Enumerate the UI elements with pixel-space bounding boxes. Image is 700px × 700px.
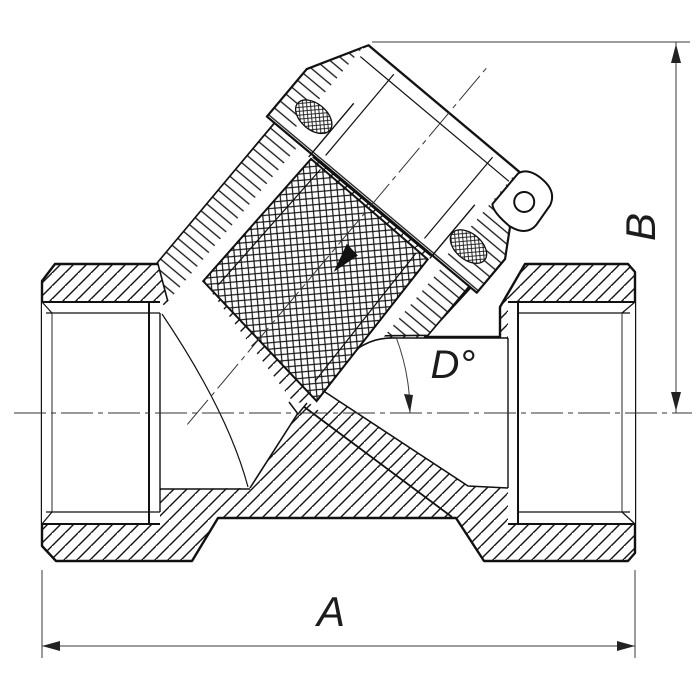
dim-label-b: B: [617, 213, 664, 241]
y-strainer-section-drawing: A B D°: [0, 0, 700, 700]
dim-label-d: D°: [431, 343, 476, 387]
dim-label-a: A: [314, 588, 345, 635]
technical-drawing-page: A B D°: [0, 0, 700, 700]
dim-b-arrow-top: [671, 44, 681, 63]
dim-b-arrow-bottom: [671, 392, 681, 411]
dim-a-arrow-right: [617, 641, 635, 651]
dim-a-arrow-left: [42, 641, 60, 651]
